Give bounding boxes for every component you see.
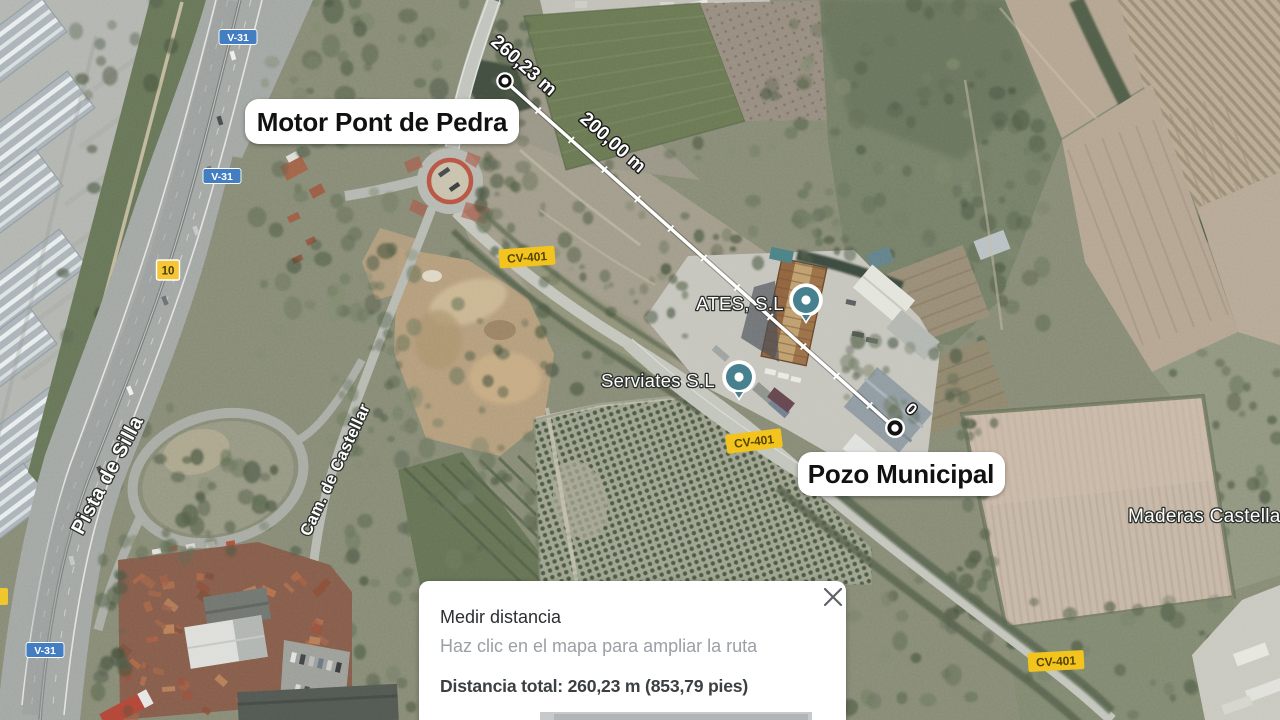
svg-text:Haz clic en el mapa para ampli: Haz clic en el mapa para ampliar la ruta <box>440 636 758 656</box>
svg-text:Pozo Municipal: Pozo Municipal <box>808 459 994 489</box>
svg-text:V-31: V-31 <box>211 171 233 183</box>
svg-text:V-31: V-31 <box>34 645 56 657</box>
svg-text:Motor Pont de Pedra: Motor Pont de Pedra <box>257 107 508 137</box>
svg-text:V-31: V-31 <box>227 32 249 44</box>
svg-text:ATES, S.L: ATES, S.L <box>696 293 784 314</box>
svg-text:CV-401: CV-401 <box>1036 653 1077 669</box>
svg-text:Maderas Castellar: Maderas Castellar <box>1128 506 1280 527</box>
svg-text:10: 10 <box>162 266 175 278</box>
svg-text:Medir distancia: Medir distancia <box>440 607 562 627</box>
svg-text:CV-401: CV-401 <box>507 249 548 266</box>
svg-text:Serviates S.L: Serviates S.L <box>601 370 715 391</box>
svg-text:Distancia total: 260,23 m (853: Distancia total: 260,23 m (853,79 pies) <box>440 676 748 696</box>
